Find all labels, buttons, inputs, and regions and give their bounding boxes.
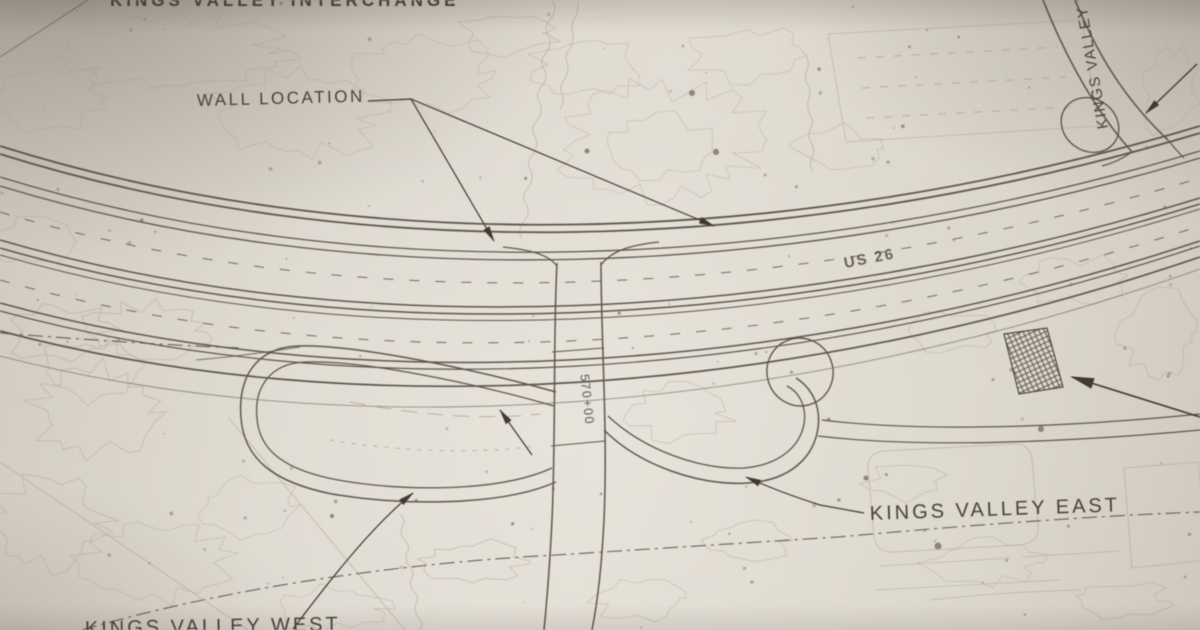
us26-route-label: US 26	[843, 245, 897, 272]
kings-valley-east-label: KINGS VALLEY EAST	[869, 494, 1120, 525]
field-dashed-rows	[828, 20, 1098, 142]
wall-location-label: WALL LOCATION	[197, 87, 365, 110]
right-loop-ramp	[604, 329, 1200, 484]
terrain-dot-specks	[0, 0, 1192, 628]
structure-pointer	[1072, 377, 1200, 417]
hatched-structure	[1004, 328, 1063, 394]
loop-pointer	[500, 410, 532, 455]
wall-location-leader-2	[411, 99, 714, 226]
kings-valley-drive-label: KINGS VALLEY D	[1071, 0, 1112, 130]
vegetation-contours	[0, 11, 1200, 630]
photographed-roadway-site-plan: KINGS VALLEY INTERCHANGE WALL LOCATION U…	[0, 0, 1200, 630]
stream-squiggle-lines	[400, 2, 814, 630]
top-cutoff-label: KINGS VALLEY INTERCHANGE	[110, 0, 459, 10]
kings-valley-drive-pointer	[1146, 64, 1197, 113]
leader-arrows	[293, 64, 1200, 629]
kings-valley-west-cutoff-label: KINGS VALLEY WEST	[85, 614, 341, 630]
kings-valley-drive-road	[1043, 0, 1184, 166]
kings-valley-east-leader	[746, 477, 864, 513]
site-plan-drawing: KINGS VALLEY INTERCHANGE WALL LOCATION U…	[0, 0, 1200, 630]
crossing-road	[503, 242, 659, 630]
